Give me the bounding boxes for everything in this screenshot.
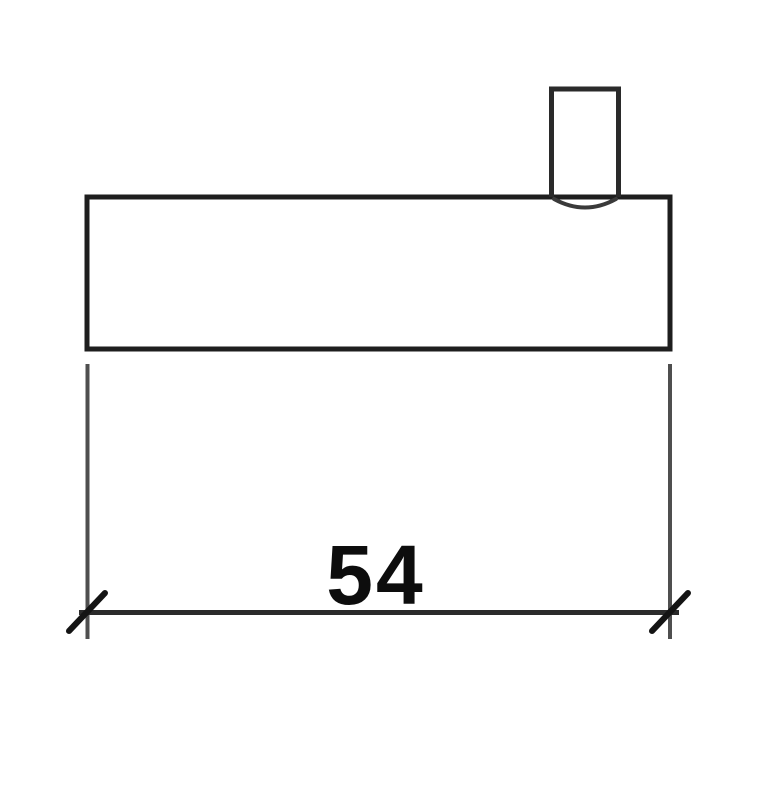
part-body-rectangle	[87, 197, 670, 349]
dimension-annotation: 54	[69, 364, 688, 639]
part-tab-outline	[552, 89, 619, 197]
technical-drawing: 54	[0, 0, 776, 800]
technical-drawing-canvas: 54	[0, 0, 776, 800]
part-tab-base-arc	[554, 199, 616, 208]
dimension-value-label: 54	[326, 528, 425, 622]
part-outline	[87, 89, 670, 349]
